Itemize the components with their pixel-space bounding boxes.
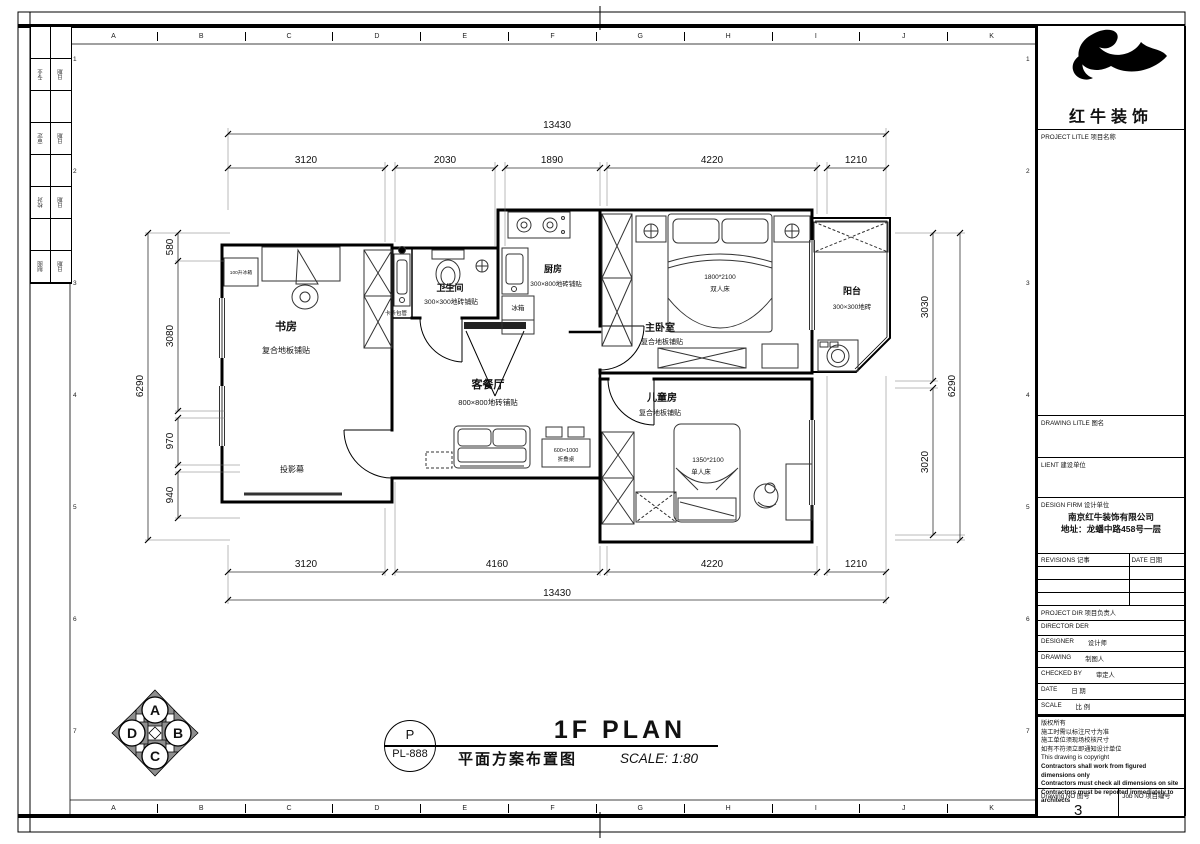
tb-scale: SCALE比 例 bbox=[1038, 700, 1184, 715]
title-block: 红牛装饰 PROJECT LITLE 项目名称 DRAWING LITLE 图名… bbox=[1035, 26, 1186, 816]
firm-address: 地址：龙蟠中路458号一层 bbox=[1038, 523, 1184, 535]
tb-project: PROJECT LITLE 项目名称 bbox=[1038, 130, 1184, 416]
balcony-cabinet bbox=[814, 222, 888, 252]
svg-text:1890: 1890 bbox=[541, 155, 564, 166]
svg-text:书房: 书房 bbox=[275, 319, 297, 333]
kitchen-labels: 厨房 300×800地砖铺贴 冰箱 bbox=[512, 263, 583, 312]
master-labels: 主卧室 复合地板铺贴 1800*2100 双人床 bbox=[641, 274, 736, 346]
svg-text:3030: 3030 bbox=[920, 295, 931, 318]
svg-text:3020: 3020 bbox=[920, 450, 931, 473]
svg-text:300×800地砖铺贴: 300×800地砖铺贴 bbox=[530, 279, 582, 288]
compass-letter-c: C bbox=[150, 748, 160, 764]
svg-text:复合地板铺贴: 复合地板铺贴 bbox=[639, 408, 681, 417]
tb-drawing-by: DRAWING制图人 bbox=[1038, 652, 1184, 668]
tb-client: LIENT 建设单位 bbox=[1038, 458, 1184, 498]
master-tv-cabinet bbox=[658, 344, 798, 368]
tb-design-firm: DESIGN FIRM 设计单位 南京红牛装饰有限公司 地址：龙蟠中路458号一… bbox=[1038, 498, 1184, 554]
grid-letters-top: A B C D E F G H I J K bbox=[70, 29, 1035, 43]
svg-text:冰箱: 冰箱 bbox=[512, 303, 526, 312]
tb-drawing-title: DRAWING LITLE 图名 bbox=[1038, 416, 1184, 458]
svg-text:100升冰箱: 100升冰箱 bbox=[230, 269, 253, 276]
svg-text:双人床: 双人床 bbox=[710, 284, 730, 293]
bull-logo-icon bbox=[1041, 26, 1181, 100]
living-labels: 客餐厅 800×800地砖铺贴 600×1000 折叠桌 bbox=[458, 377, 578, 463]
master-nightstands bbox=[636, 216, 810, 242]
svg-text:4220: 4220 bbox=[701, 155, 724, 166]
svg-text:4220: 4220 bbox=[701, 559, 724, 570]
kids-labels: 儿童房 复合地板铺贴 1350*2100 单人床 bbox=[639, 391, 724, 476]
tb-designer: DESIGNER设计师 bbox=[1038, 636, 1184, 652]
svg-text:1800*2100: 1800*2100 bbox=[704, 274, 736, 281]
svg-text:970: 970 bbox=[165, 432, 176, 449]
svg-text:13430: 13430 bbox=[543, 120, 571, 131]
svg-text:3080: 3080 bbox=[165, 324, 176, 347]
svg-text:580: 580 bbox=[165, 238, 176, 255]
dimension-labels: 13430 3120 2030 1890 4220 1210 3120 4160… bbox=[135, 120, 958, 599]
firm-name: 南京红牛装饰有限公司 bbox=[1038, 511, 1184, 523]
svg-text:3120: 3120 bbox=[295, 559, 318, 570]
balcony-labels: 阳台 300×300地砖 bbox=[833, 285, 872, 311]
kitchen-sink bbox=[502, 248, 528, 294]
svg-text:复合地板铺贴: 复合地板铺贴 bbox=[262, 345, 310, 355]
svg-text:2030: 2030 bbox=[434, 155, 457, 166]
svg-text:厨房: 厨房 bbox=[544, 263, 562, 274]
svg-text:儿童房: 儿童房 bbox=[646, 391, 677, 404]
svg-text:主卧室: 主卧室 bbox=[645, 321, 675, 334]
svg-text:单人床: 单人床 bbox=[691, 467, 711, 476]
svg-text:6290: 6290 bbox=[947, 374, 958, 397]
svg-text:13430: 13430 bbox=[543, 588, 571, 599]
brand-logo-box: 红牛装饰 bbox=[1038, 26, 1184, 130]
tb-director: DIRECTOR DER bbox=[1038, 621, 1184, 636]
compass-letter-a: A bbox=[150, 702, 160, 718]
svg-text:复合地板铺贴: 复合地板铺贴 bbox=[641, 337, 683, 346]
plan-scale: SCALE: 1:80 bbox=[620, 751, 698, 766]
compass-letter-d: D bbox=[127, 725, 137, 741]
svg-text:940: 940 bbox=[165, 486, 176, 503]
svg-text:1350*2100: 1350*2100 bbox=[692, 457, 724, 464]
kids-wardrobe bbox=[602, 432, 676, 524]
plan-title-cn: 平面方案布置图 bbox=[458, 748, 577, 769]
svg-text:阳台: 阳台 bbox=[843, 285, 861, 296]
svg-text:4160: 4160 bbox=[486, 559, 509, 570]
compass: A B C D bbox=[112, 690, 198, 776]
svg-text:卡条包管: 卡条包管 bbox=[385, 309, 408, 317]
svg-text:投影幕: 投影幕 bbox=[280, 464, 304, 474]
plan-code-letter: P bbox=[385, 727, 435, 742]
svg-text:6290: 6290 bbox=[135, 374, 146, 397]
signature-strip: 专业 日期 审定 日期 校对 日期 制图 日期 bbox=[30, 26, 72, 284]
svg-text:卫生间: 卫生间 bbox=[436, 282, 463, 293]
bath-labels: 卫生间 300×300地砖铺贴 卡条包管 bbox=[385, 282, 478, 317]
tb-project-dir: PROJECT DIR 项目负责人 bbox=[1038, 606, 1184, 621]
svg-text:600×1000: 600×1000 bbox=[554, 448, 579, 454]
svg-text:1210: 1210 bbox=[845, 155, 868, 166]
svg-text:客餐厅: 客餐厅 bbox=[471, 377, 505, 391]
compass-letter-b: B bbox=[173, 725, 183, 741]
plan-title-en: 1F PLAN bbox=[515, 716, 725, 745]
stove bbox=[508, 212, 570, 238]
tb-checked-by: CHECKED BY审定人 bbox=[1038, 668, 1184, 684]
plan-code: PL-888 bbox=[385, 748, 435, 760]
svg-text:300×300地砖铺贴: 300×300地砖铺贴 bbox=[424, 297, 478, 306]
washbasin bbox=[394, 247, 410, 307]
washing-machine bbox=[818, 340, 858, 371]
svg-text:300×300地砖: 300×300地砖 bbox=[833, 302, 872, 311]
kids-desk-chair bbox=[754, 464, 812, 520]
plan-code-bubble: P PL-888 bbox=[384, 720, 436, 772]
tb-revisions: REVISIONS 记事 DATE 日期 bbox=[1038, 554, 1184, 606]
tb-date: DATE日 期 bbox=[1038, 684, 1184, 700]
tb-notes: 版权所有 施工时需以标注尺寸为准 施工单位须现场校核尺寸 如有不符须立即通知设计… bbox=[1038, 715, 1184, 789]
study-labels: 书房 复合地板铺贴 投影幕 100升冰箱 bbox=[230, 269, 310, 474]
grid-letters-bottom: A B C D E F G H I J K bbox=[70, 801, 1035, 815]
brand-name: 红牛装饰 bbox=[1038, 103, 1184, 127]
svg-text:1210: 1210 bbox=[845, 559, 868, 570]
drawing-sheet: 书房 复合地板铺贴 投影幕 100升冰箱 卫生间 300×300地砖铺贴 卡条包… bbox=[0, 0, 1200, 844]
sofa bbox=[426, 426, 530, 468]
master-bed bbox=[668, 214, 772, 332]
svg-text:折叠桌: 折叠桌 bbox=[558, 455, 575, 463]
tb-drawing-no: Drawing NO 图号 3 Job NO 项目编号 bbox=[1038, 789, 1184, 816]
study-furniture bbox=[224, 247, 392, 494]
drawing-number: 3 bbox=[1038, 802, 1118, 819]
svg-text:800×800地砖铺贴: 800×800地砖铺贴 bbox=[458, 397, 518, 407]
svg-text:3120: 3120 bbox=[295, 155, 318, 166]
